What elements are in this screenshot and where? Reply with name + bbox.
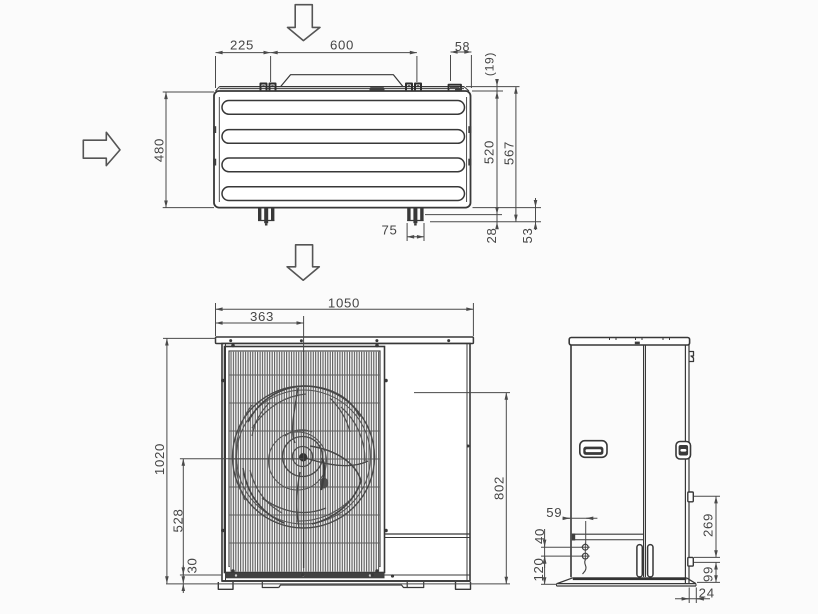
svg-text:53: 53 (520, 227, 535, 243)
svg-text:(19): (19) (483, 52, 497, 76)
svg-text:225: 225 (230, 37, 254, 52)
svg-text:802: 802 (492, 476, 507, 500)
svg-text:567: 567 (502, 141, 517, 165)
svg-text:480: 480 (152, 138, 167, 162)
svg-text:120: 120 (531, 557, 546, 581)
svg-text:600: 600 (330, 37, 354, 52)
svg-text:520: 520 (481, 140, 496, 164)
svg-text:59: 59 (546, 505, 562, 520)
svg-text:28: 28 (484, 227, 499, 243)
svg-text:1050: 1050 (328, 296, 360, 311)
svg-text:75: 75 (381, 223, 397, 238)
svg-text:1020: 1020 (152, 443, 167, 475)
svg-text:40: 40 (532, 528, 547, 544)
svg-text:24: 24 (699, 586, 715, 601)
svg-text:363: 363 (250, 309, 274, 324)
svg-text:30: 30 (184, 557, 199, 573)
svg-text:99: 99 (701, 566, 716, 582)
svg-text:528: 528 (170, 508, 185, 532)
svg-text:58: 58 (455, 40, 470, 54)
svg-text:269: 269 (701, 513, 716, 537)
